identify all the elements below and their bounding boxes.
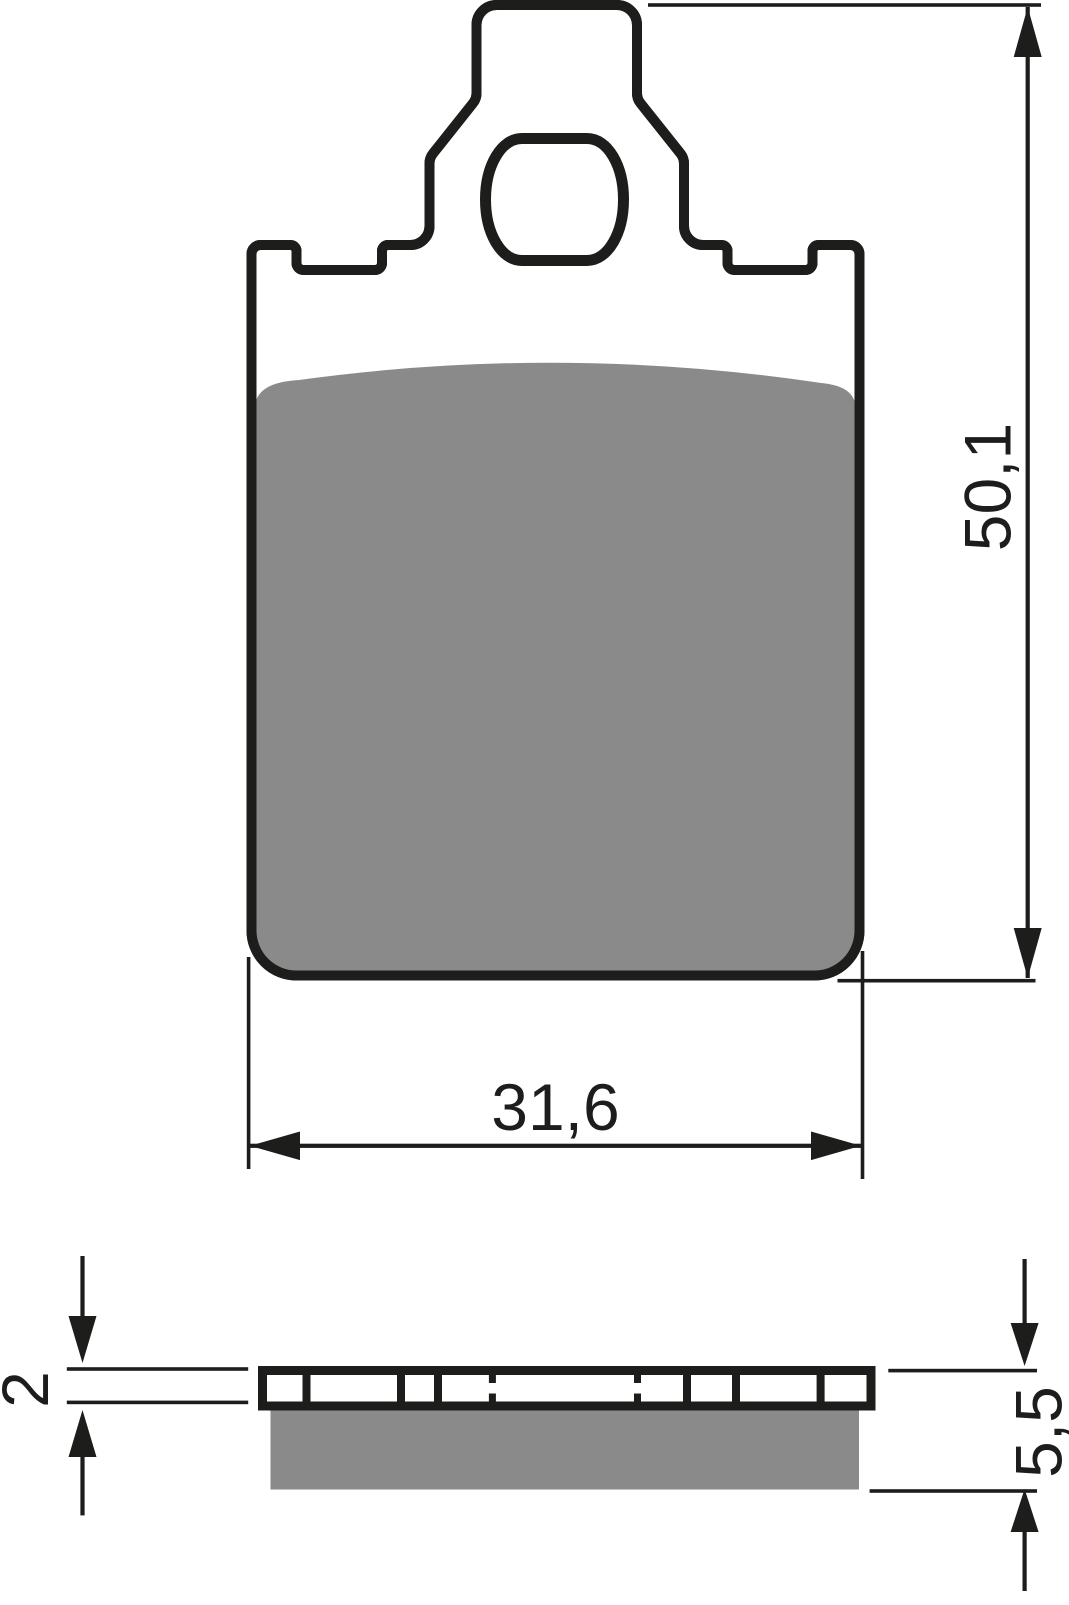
svg-text:50,1: 50,1 <box>951 423 1025 551</box>
svg-text:31,6: 31,6 <box>491 1070 619 1144</box>
svg-text:2: 2 <box>0 1371 62 1408</box>
svg-text:5,5: 5,5 <box>1002 1386 1069 1478</box>
